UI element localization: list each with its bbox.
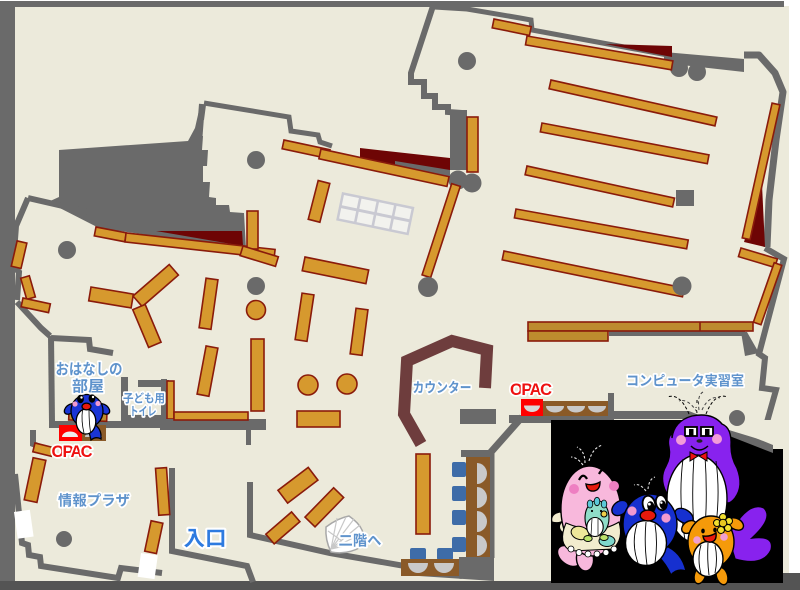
svg-text:OPAC: OPAC xyxy=(52,443,93,461)
svg-text:OPAC: OPAC xyxy=(510,381,552,399)
